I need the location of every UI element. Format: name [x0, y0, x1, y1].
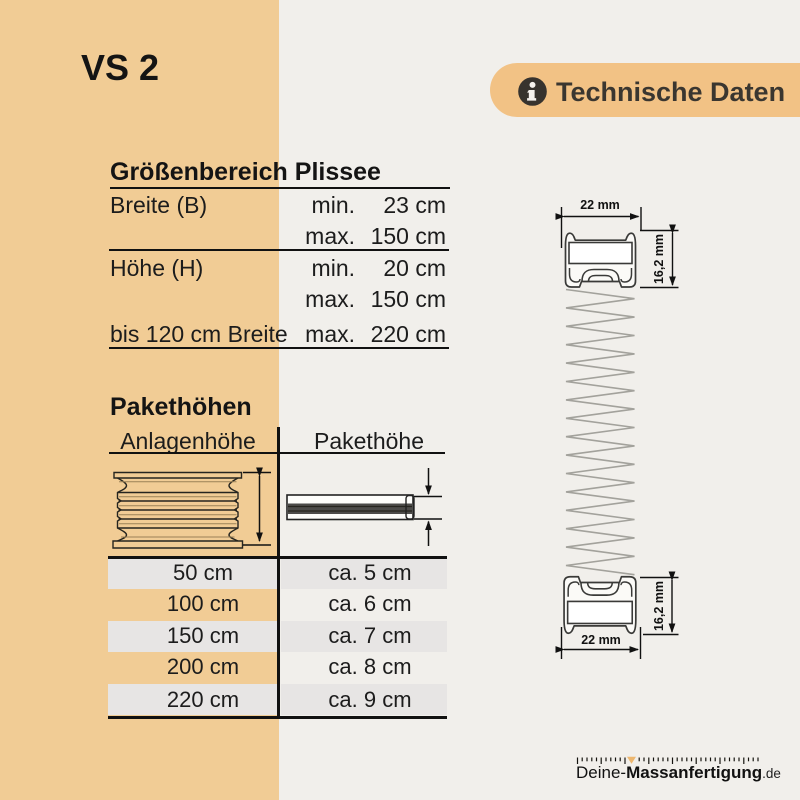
svg-text:22 mm: 22 mm: [580, 198, 620, 212]
svg-text:16,2 mm: 16,2 mm: [652, 581, 666, 631]
svg-text:22 mm: 22 mm: [581, 633, 621, 647]
svg-text:16,2 mm: 16,2 mm: [652, 234, 666, 284]
